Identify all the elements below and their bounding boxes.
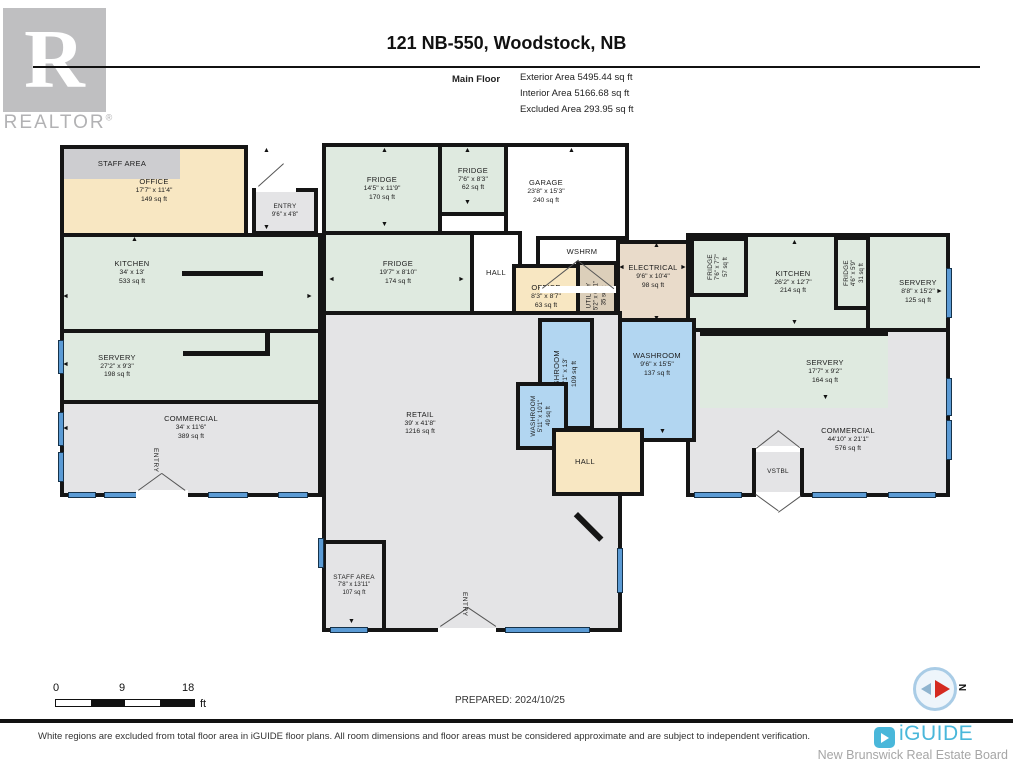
realtor-logo-r: R — [24, 18, 85, 102]
window — [58, 452, 64, 482]
direction-arrow: ▼ — [381, 221, 388, 228]
window — [330, 627, 368, 633]
door-swing — [258, 163, 284, 186]
direction-arrow: ▲ — [653, 242, 660, 249]
room-hall-2: HALL — [552, 428, 644, 496]
room-commercial-1: COMMERCIAL 34' x 11'6" 389 sq ft — [60, 400, 322, 497]
room-label: FRIDGE 7'6" x 8'3" 62 sq ft — [442, 147, 504, 212]
title-rule — [33, 66, 980, 68]
room-kitchen-1: KITCHEN 34' x 13' 533 sq ft — [60, 233, 322, 333]
stat-exterior-area: Exterior Area 5495.44 sq ft — [520, 72, 632, 83]
scale-tick-0: 0 — [53, 682, 59, 694]
direction-arrow: ▲ — [568, 147, 575, 154]
door-opening — [256, 186, 296, 192]
direction-arrow: ▼ — [822, 394, 829, 401]
room-fridge-2: FRIDGE 7'6" x 8'3" 62 sq ft — [438, 143, 508, 216]
board-name: New Brunswick Real Estate Board — [818, 748, 1008, 762]
room-fridge-3: FRIDGE 19'7" x 8'10" 174 sq ft — [322, 231, 474, 315]
room-label: STAFF AREA 7'8" x 13'11" 107 sq ft — [326, 544, 382, 628]
window — [58, 340, 64, 374]
direction-arrow: ◄ — [328, 276, 335, 283]
room-label: SERVERY 27'2" x 9'3" 198 sq ft — [64, 333, 318, 400]
room-vstbl: VSTBL — [752, 448, 804, 497]
direction-arrow: ◄ — [62, 425, 69, 432]
window — [318, 538, 324, 568]
window — [694, 492, 742, 498]
window — [104, 492, 138, 498]
direction-arrow: ► — [680, 264, 687, 271]
room-label: VSTBL — [756, 452, 800, 493]
window — [946, 420, 952, 460]
prepared-date: PREPARED: 2024/10/25 — [455, 695, 565, 706]
compass-tail — [921, 683, 931, 695]
scale-segment — [125, 700, 160, 706]
room-entry-1: ENTRY 9'6" x 4'8" — [252, 188, 318, 235]
room-fridge-4: FRIDGE 7'6" x 7'7" 57 sq ft — [690, 237, 748, 297]
direction-arrow: ▼ — [263, 224, 270, 231]
room-label: STAFF AREA — [64, 149, 180, 179]
window — [68, 492, 96, 498]
iguide-logo-glyph — [881, 733, 889, 743]
realtor-wordmark: REALTOR® — [0, 112, 118, 134]
room-label: KITCHEN 34' x 13' 533 sq ft — [64, 237, 318, 329]
direction-arrow: ▲ — [263, 147, 270, 154]
scale-bar — [55, 699, 195, 707]
room-servery-1: SERVERY 27'2" x 9'3" 198 sq ft — [60, 329, 322, 404]
realtor-logo: R — [3, 8, 106, 112]
direction-arrow: ▲ — [791, 239, 798, 246]
direction-arrow: ▼ — [791, 319, 798, 326]
scale-unit: ft — [200, 698, 206, 710]
direction-arrow: ► — [306, 293, 313, 300]
room-label: WASHROOM 9'6" x 15'5" 137 sq ft — [622, 322, 692, 438]
counter-line — [182, 271, 263, 276]
iguide-wordmark: iGUIDE — [899, 722, 973, 746]
footer-rule — [0, 719, 1013, 723]
direction-arrow: ▼ — [348, 618, 355, 625]
door-swing — [778, 496, 801, 513]
counter-line — [183, 351, 268, 356]
scale-tick-9: 9 — [119, 682, 125, 694]
direction-arrow: ▲ — [464, 147, 471, 154]
room-label: HALL — [556, 432, 640, 492]
scale-segment — [160, 700, 195, 706]
direction-arrow: ▼ — [659, 428, 666, 435]
room-label: FRIDGE 14'5" x 11'9" 170 sq ft — [326, 147, 438, 231]
scale-segment — [91, 700, 126, 706]
room-washroom-2: WASHROOM 9'6" x 15'5" 137 sq ft — [618, 318, 696, 442]
window — [946, 378, 952, 416]
room-label: SERVERY 8'8" x 15'2" 125 sq ft — [870, 237, 946, 328]
room-label: COMMERCIAL 34' x 11'6" 389 sq ft — [64, 404, 318, 493]
window — [208, 492, 248, 498]
door-opening — [756, 492, 800, 498]
window — [505, 627, 590, 633]
direction-arrow: ◄ — [62, 293, 69, 300]
direction-arrow: ► — [936, 288, 943, 295]
door-opening — [540, 286, 616, 293]
direction-arrow: ▼ — [653, 315, 660, 322]
room-servery-2: SERVERY 8'8" x 15'2" 125 sq ft — [866, 233, 950, 332]
direction-arrow: ▲ — [131, 236, 138, 243]
room-staff-area-1: STAFF AREA — [64, 149, 180, 179]
stat-interior-area: Interior Area 5166.68 sq ft — [520, 88, 629, 99]
room-label: FRIDGE 19'7" x 8'10" 174 sq ft — [326, 235, 470, 311]
compass-needle — [935, 680, 950, 698]
floor-label: Main Floor — [452, 74, 500, 85]
compass-icon — [913, 667, 957, 711]
stat-excluded-area: Excluded Area 293.95 sq ft — [520, 104, 634, 115]
entry-door-label: ENTRY — [461, 592, 468, 616]
room-label: FRIDGE 7'6" x 7'7" 57 sq ft — [693, 242, 745, 292]
direction-arrow: ▼ — [464, 199, 471, 206]
door-opening — [756, 446, 800, 452]
direction-arrow: ► — [458, 276, 465, 283]
window — [888, 492, 936, 498]
window — [278, 492, 308, 498]
room-servery-3: SERVERY 17'7" x 9'2" 164 sq ft — [700, 332, 888, 408]
direction-arrow: ▲ — [381, 147, 388, 154]
door-opening — [136, 490, 188, 498]
iguide-logo-icon — [874, 727, 895, 748]
direction-arrow: ◄ — [62, 361, 69, 368]
entry-door-label: ENTRY — [152, 448, 159, 472]
window — [812, 492, 867, 498]
compass-north-label: N — [956, 684, 967, 691]
room-label: SERVERY 17'7" x 9'2" 164 sq ft — [700, 336, 888, 408]
scale-tick-18: 18 — [182, 682, 194, 694]
window — [946, 268, 952, 318]
counter-line — [265, 331, 270, 356]
page-title: 121 NB-550, Woodstock, NB — [0, 33, 1013, 54]
registered-mark: ® — [106, 113, 115, 123]
scale-segment — [56, 700, 91, 706]
door-opening — [438, 628, 496, 636]
disclaimer-text: White regions are excluded from total fl… — [38, 731, 818, 742]
direction-arrow: ◄ — [618, 264, 625, 271]
window — [617, 548, 623, 593]
